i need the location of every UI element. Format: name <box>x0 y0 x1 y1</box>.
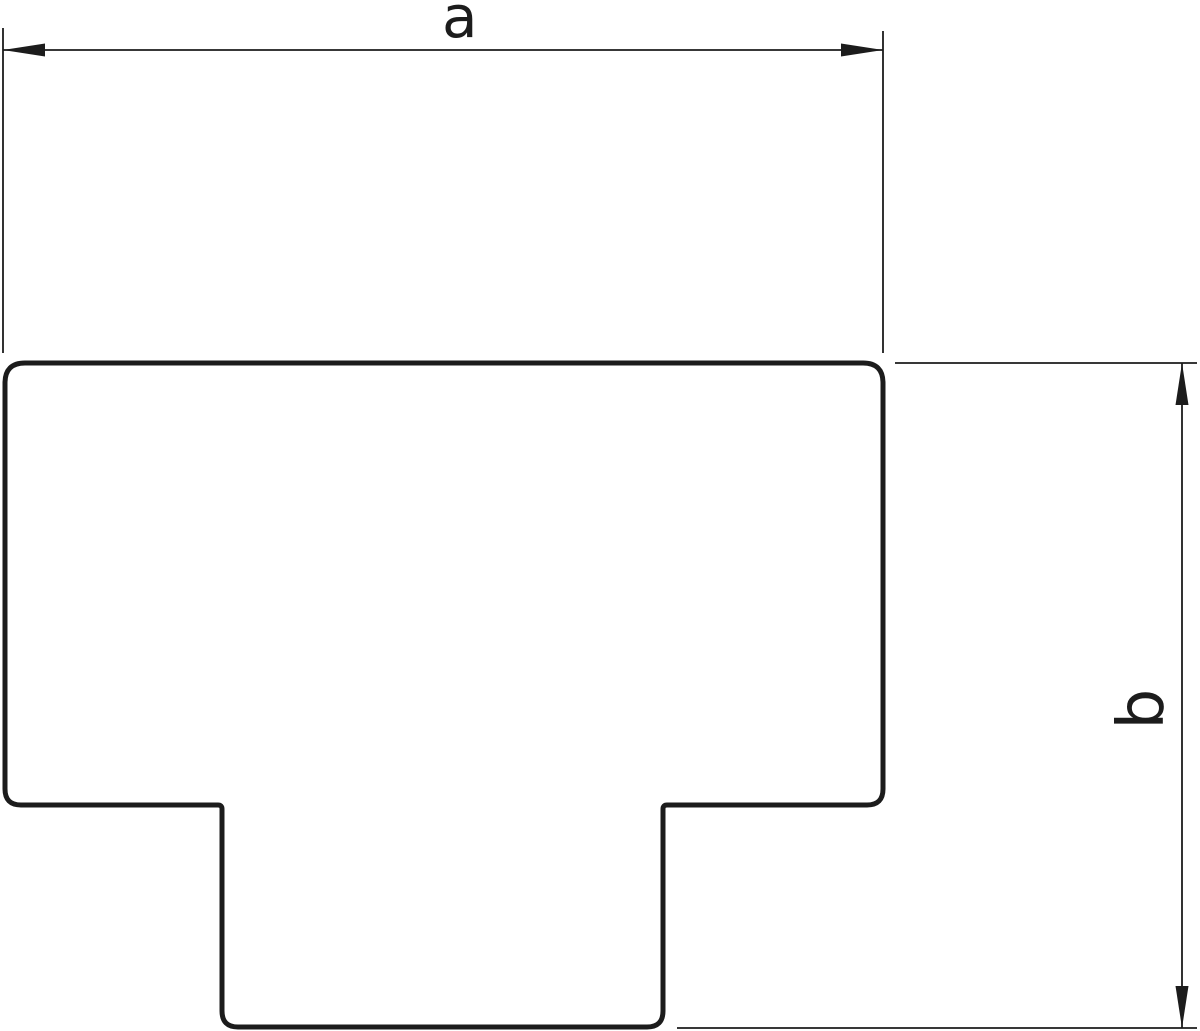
t-piece-outline <box>5 363 883 1027</box>
dimension-a-label: a <box>442 0 478 46</box>
technical-drawing-canvas: a b <box>0 0 1200 1031</box>
dimension-a-arrowhead-right-icon <box>841 44 883 57</box>
dimension-a-group <box>3 28 883 353</box>
dimension-b-arrowhead-up-icon <box>1176 363 1189 405</box>
dimension-b-arrowhead-down-icon <box>1176 986 1189 1028</box>
dimension-b-label: b <box>1107 674 1177 744</box>
t-piece-drawing <box>0 0 1200 1031</box>
dimension-a-arrowhead-left-icon <box>3 44 45 57</box>
